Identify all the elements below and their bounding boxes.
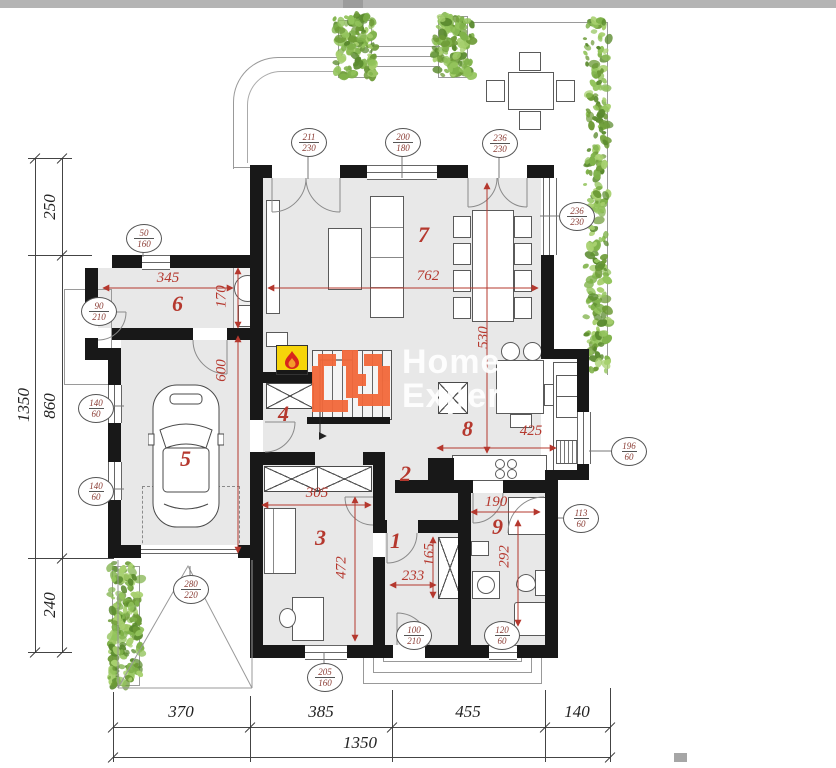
- opening-label: 90210: [81, 297, 117, 326]
- hedge-plants: [583, 14, 609, 376]
- wall-segment: [541, 349, 589, 359]
- wall-segment: [503, 480, 545, 493]
- dim-line: [62, 158, 63, 652]
- dim-165: 165: [422, 525, 439, 585]
- kitchen-sink: [556, 396, 578, 418]
- dim-170: 170: [214, 267, 231, 327]
- opening-label: 100210: [396, 621, 432, 650]
- room-number-7: 7: [418, 222, 429, 248]
- hob-burner: [495, 459, 505, 469]
- dim-line: [113, 727, 610, 728]
- dim-762: 762: [398, 268, 458, 285]
- dim-left-250: 250: [40, 172, 60, 242]
- room-number-3: 3: [315, 525, 326, 551]
- hob-burner: [507, 459, 517, 469]
- watermark-line2: Expert: [402, 380, 514, 412]
- kitchen-corner-block: [428, 458, 454, 480]
- wall-segment: [108, 423, 121, 462]
- desk: [292, 597, 324, 641]
- sofa: [264, 508, 296, 574]
- opening-label: 200180: [385, 128, 421, 157]
- wall-segment: [577, 359, 589, 412]
- wall-segment: [545, 470, 589, 480]
- top-bar: [0, 0, 836, 8]
- dim-extension: [28, 558, 114, 559]
- fireplace-icon: [276, 345, 308, 375]
- hob-burner: [495, 469, 505, 479]
- bath-sink: [471, 541, 489, 556]
- toilet-bowl: [516, 574, 536, 592]
- wall-segment: [238, 545, 263, 558]
- room-number-5: 5: [180, 446, 191, 472]
- dim-extension: [250, 696, 251, 762]
- terrace-chair: [519, 111, 541, 130]
- opening-label: 14060: [78, 394, 114, 423]
- wall-segment: [527, 165, 554, 178]
- wall-segment: [545, 480, 558, 645]
- flower-bed-plants: [106, 560, 142, 688]
- dining-chair: [514, 216, 532, 238]
- window: [367, 165, 437, 180]
- terrace-chair: [486, 80, 505, 102]
- wall-segment: [437, 165, 468, 178]
- terrace-chair: [556, 80, 575, 102]
- wall-segment: [363, 452, 385, 465]
- dim-bottom-140: 140: [542, 702, 612, 722]
- wardrobe: [266, 383, 314, 409]
- dim-305: 305: [287, 485, 347, 502]
- corner-artifact: [674, 753, 687, 762]
- window: [577, 412, 591, 464]
- opening-label: 236230: [482, 129, 518, 158]
- wall-segment: [347, 645, 393, 658]
- dim-bottom-total: 1350: [325, 733, 395, 753]
- dining-chair: [514, 270, 532, 292]
- wall-segment: [517, 645, 558, 658]
- opening-label: 11360: [563, 504, 599, 533]
- opening-label: 236230: [559, 202, 595, 231]
- wall-segment: [108, 500, 121, 545]
- dim-bottom-455: 455: [433, 702, 503, 722]
- room-number-1: 1: [390, 528, 401, 554]
- dining-chair: [453, 243, 471, 265]
- washer-drum: [477, 576, 495, 594]
- window: [305, 645, 347, 660]
- room-number-8: 8: [462, 416, 473, 442]
- opening-label: 211230: [291, 128, 327, 157]
- opening-label: 50160: [126, 224, 162, 253]
- watermark-line1: Home: [402, 346, 500, 378]
- window: [142, 255, 170, 270]
- opening-label: 12060: [484, 621, 520, 650]
- dim-472: 472: [334, 538, 351, 598]
- niche-partition: [233, 268, 234, 328]
- dim-bottom-370: 370: [146, 702, 216, 722]
- dim-left-860: 860: [40, 371, 60, 441]
- wall-segment: [373, 520, 387, 533]
- room-number-2: 2: [400, 461, 411, 487]
- wall-segment: [108, 545, 141, 558]
- wall-segment: [541, 255, 554, 355]
- dim-bottom-385: 385: [286, 702, 356, 722]
- kitchen-sink: [556, 375, 578, 397]
- tv-cabinet: [266, 200, 280, 314]
- opening-label: 280220: [173, 575, 209, 604]
- dining-chair: [514, 297, 532, 319]
- wall-segment: [85, 338, 98, 360]
- desk-chair: [279, 608, 296, 628]
- wall-segment: [458, 493, 471, 645]
- wall-segment: [250, 645, 305, 658]
- dining-chair: [453, 297, 471, 319]
- wall-segment: [112, 255, 143, 268]
- kitchen-chair: [523, 342, 542, 361]
- dim-left-240: 240: [40, 570, 60, 640]
- dim-425: 425: [501, 423, 561, 440]
- wall-segment: [340, 165, 367, 178]
- wall-segment: [250, 165, 263, 420]
- wall-segment: [425, 645, 489, 658]
- dim-line: [113, 757, 610, 758]
- garage-door: [141, 545, 238, 558]
- home-expert-logo: [312, 350, 392, 412]
- sofa: [370, 196, 404, 318]
- dim-345: 345: [138, 270, 198, 287]
- planter-plant: [330, 12, 376, 78]
- hob-burner: [507, 469, 517, 479]
- kitchen-chair: [501, 342, 520, 361]
- terrace-chair: [519, 52, 541, 71]
- planter-plant: [430, 10, 474, 78]
- dining-table: [472, 210, 514, 322]
- floor-plan: 345 170 600 762 530 425 305 472 233 165 …: [0, 0, 836, 768]
- glass-wall: [543, 178, 557, 255]
- room-number-9: 9: [492, 514, 503, 540]
- wall-segment: [373, 465, 385, 525]
- dim-line: [35, 158, 36, 652]
- dim-190: 190: [466, 494, 526, 511]
- opening-label: 19660: [611, 437, 647, 466]
- wall-segment: [170, 255, 255, 268]
- dim-600: 600: [214, 341, 231, 401]
- terrace-table: [508, 72, 554, 110]
- room-number-4: 4: [278, 401, 289, 427]
- dining-chair: [453, 216, 471, 238]
- opening-label: 14060: [78, 477, 114, 506]
- dishwasher: [556, 440, 578, 464]
- wall-segment: [112, 328, 193, 340]
- flame-icon: [283, 350, 301, 370]
- wall-segment: [227, 328, 263, 340]
- wall-segment: [263, 452, 315, 465]
- wall-segment: [108, 348, 121, 385]
- room-number-6: 6: [172, 291, 183, 317]
- top-bar-dark-segment: [343, 0, 363, 8]
- dining-chair: [514, 243, 532, 265]
- dim-left-total: 1350: [14, 370, 34, 440]
- stair-edge: [307, 417, 390, 424]
- opening-label: 205160: [307, 663, 343, 692]
- coffee-table: [328, 228, 362, 290]
